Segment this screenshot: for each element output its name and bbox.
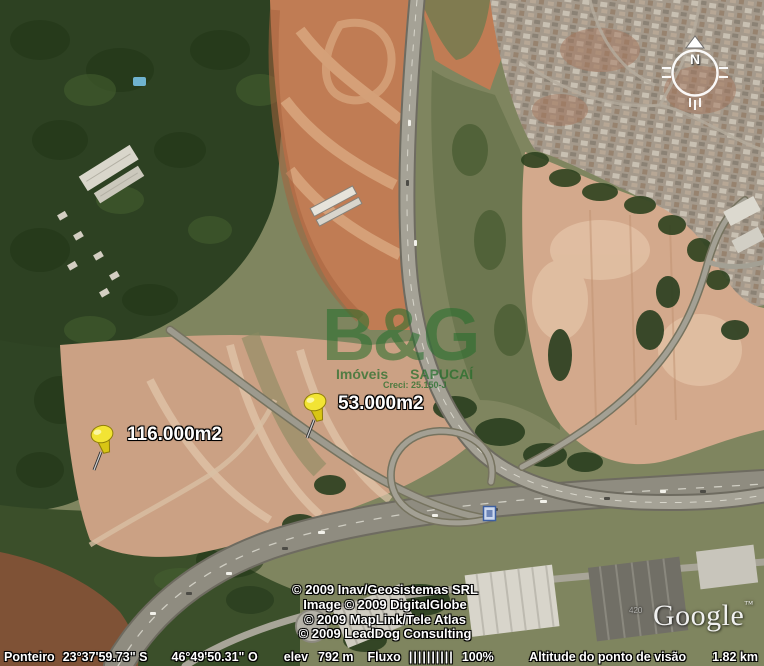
pointer-longitude: 46°49'50.31" O	[172, 650, 258, 664]
view-altitude-value: 1.82 km	[712, 650, 758, 664]
photo-marker-icon[interactable]	[484, 507, 496, 521]
google-earth-view: B&G ImóveisSAPUCAÍ Creci: 25.150-J 116.0…	[0, 0, 764, 666]
status-bar-left: Ponteiro 23°37'59.73" S 46°49'50.31" O e…	[4, 650, 494, 664]
pin-label-area-1: 116.000m2	[127, 424, 222, 446]
google-logo: Google™	[653, 599, 753, 633]
pushpin-icon[interactable]	[297, 390, 335, 440]
watermark-logo: B&G	[322, 298, 477, 372]
copyright-block: © 2009 Inav/Geosistemas SRL Image © 2009…	[292, 583, 478, 642]
elevation-label: elev	[284, 650, 308, 664]
stream-label: Fluxo	[367, 650, 400, 664]
watermark-brand-left: Imóveis	[336, 366, 388, 382]
copyright-line: © 2009 LeadDog Consulting	[292, 627, 478, 642]
pushpin-icon[interactable]	[84, 422, 122, 472]
copyright-line: Image © 2009 DigitalGlobe	[292, 598, 478, 613]
pin-label-area-2: 53.000m2	[338, 393, 424, 415]
imagery-mark: 420	[629, 606, 642, 615]
status-bar-right: Altitude do ponto de visão 1.82 km	[529, 650, 758, 664]
compass-icon[interactable]: N	[658, 28, 732, 114]
elevation-value: 792 m	[318, 650, 353, 664]
pointer-latitude: 23°37'59.73" S	[63, 650, 148, 664]
google-tm: ™	[744, 599, 753, 609]
compass-north-label: N	[690, 51, 700, 67]
google-logo-text: Google	[653, 599, 744, 632]
pointer-label: Ponteiro	[4, 650, 55, 664]
copyright-line: © 2009 MapLink/Tele Atlas	[292, 613, 478, 628]
stream-percent: 100%	[462, 650, 494, 664]
copyright-line: © 2009 Inav/Geosistemas SRL	[292, 583, 478, 598]
watermark-creci: Creci: 25.150-J	[383, 380, 447, 390]
stream-progress-bars: ||||||||||	[409, 650, 454, 664]
view-altitude-label: Altitude do ponto de visão	[529, 650, 686, 664]
